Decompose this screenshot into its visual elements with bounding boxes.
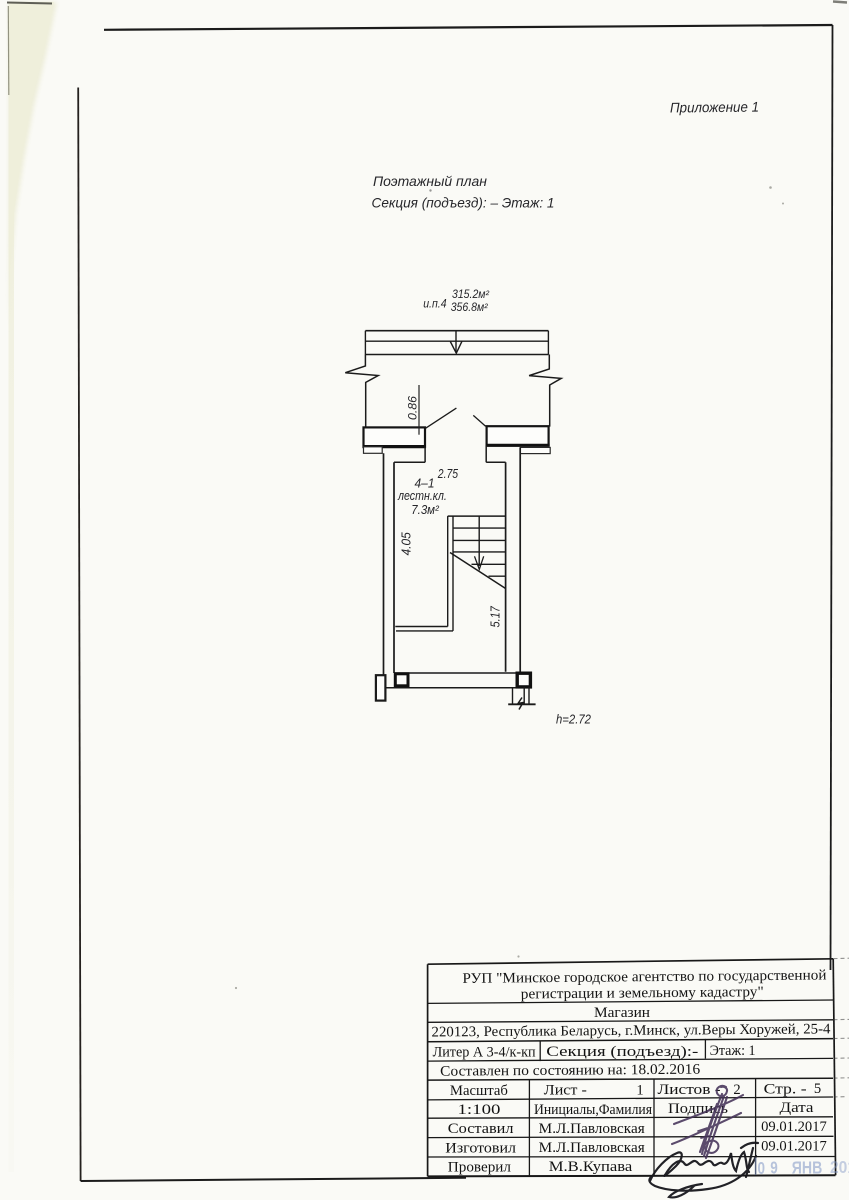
svg-text:5.17: 5.17 [489, 605, 503, 627]
svg-text:9: 9 [770, 1158, 778, 1178]
svg-text:и.п.4: и.п.4 [423, 298, 446, 310]
svg-text:Магазин: Магазин [594, 1005, 650, 1021]
svg-text:Составлен по состоянию на: 18.: Составлен по состоянию на: 18.02.2016 [440, 1062, 700, 1080]
svg-text:М.В.Купава: М.В.Купава [549, 1159, 633, 1175]
svg-text:Листов -: Листов - [658, 1082, 721, 1098]
svg-text:Приложение 1: Приложение 1 [670, 99, 759, 116]
svg-text:Дата: Дата [780, 1100, 815, 1116]
svg-text:РУП "Минское городское агентст: РУП "Минское городское агентство по госу… [462, 967, 826, 986]
svg-text:Поэтажный план: Поэтажный план [373, 173, 487, 189]
svg-text:Секция (подъезд): – Этаж: 1: Секция (подъезд): – Этаж: 1 [372, 195, 555, 211]
svg-text:7.3м²: 7.3м² [411, 503, 439, 517]
svg-text:5: 5 [814, 1081, 821, 1097]
svg-text:0: 0 [758, 1158, 766, 1178]
svg-text:М.Л.Павловская: М.Л.Павловская [539, 1140, 645, 1156]
svg-text:1:100: 1:100 [458, 1102, 501, 1118]
svg-text:лестн.кл.: лестн.кл. [397, 489, 447, 503]
svg-text:Этаж: 1: Этаж: 1 [710, 1043, 756, 1059]
svg-text:Масштаб: Масштаб [450, 1083, 508, 1099]
svg-text:201: 201 [830, 1157, 849, 1177]
svg-text:0.86: 0.86 [406, 396, 420, 420]
svg-text:2: 2 [733, 1082, 740, 1098]
svg-text:регистрации и земельному кадас: регистрации и земельному кадастру" [521, 984, 764, 1002]
svg-text:315.2м²: 315.2м² [452, 289, 490, 301]
svg-text:2.75: 2.75 [437, 467, 458, 481]
svg-text:1: 1 [636, 1082, 643, 1098]
svg-text:h=2.72: h=2.72 [556, 713, 591, 727]
svg-text:Литер А 3-4/к-кп: Литер А 3-4/к-кп [433, 1044, 536, 1060]
svg-text:ЯНВ: ЯНВ [792, 1157, 823, 1177]
svg-text:Стр. -: Стр. - [764, 1081, 807, 1097]
svg-text:Инициалы,Фамилия: Инициалы,Фамилия [534, 1102, 652, 1118]
svg-text:220123, Республика Беларусь, г: 220123, Республика Беларусь, г.Минск, ул… [431, 1021, 831, 1040]
svg-text:Секция (подъезд):-: Секция (подъезд):- [546, 1044, 698, 1060]
svg-text:4.05: 4.05 [399, 532, 413, 555]
svg-text:М.Л.Павловская: М.Л.Павловская [539, 1121, 645, 1137]
svg-text:09.01.2017: 09.01.2017 [761, 1119, 827, 1135]
svg-text:Лист -: Лист - [544, 1083, 587, 1099]
svg-text:Изготовил: Изготовил [445, 1141, 516, 1157]
svg-text:356.8м²: 356.8м² [451, 302, 489, 314]
svg-text:09.01.2017: 09.01.2017 [761, 1139, 827, 1155]
svg-text:Проверил: Проверил [448, 1160, 511, 1176]
svg-text:Составил: Составил [448, 1121, 514, 1137]
